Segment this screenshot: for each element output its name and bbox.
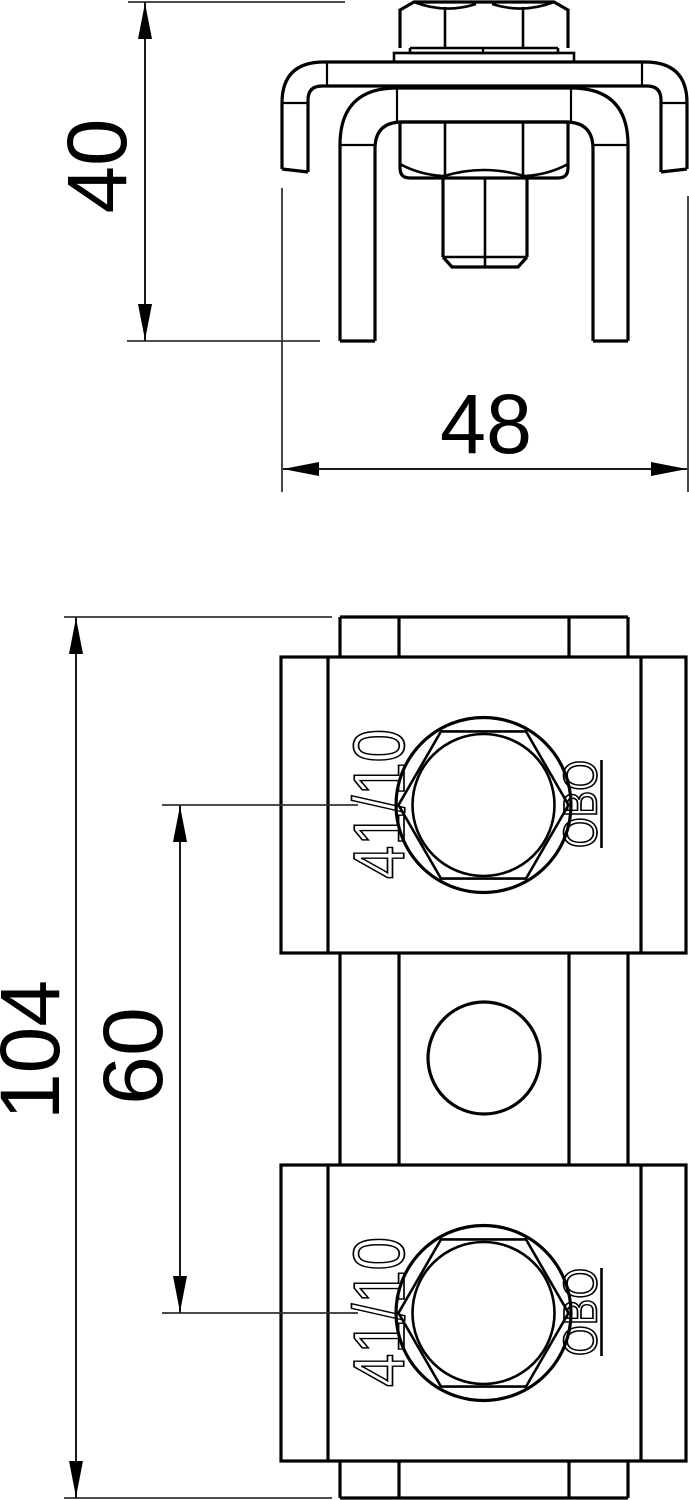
brand-marking-2: OBO	[554, 1268, 607, 1356]
arrowhead-down	[69, 1461, 83, 1497]
arrowhead-up	[69, 618, 83, 654]
bolt-size-marking-2: 41/10	[340, 1237, 420, 1387]
technical-drawing: 40 48	[0, 0, 689, 1500]
arrowhead-up	[138, 3, 152, 39]
rail-hole	[428, 1002, 540, 1114]
dim-width-label: 48	[440, 377, 532, 471]
arrowhead-down	[173, 1276, 187, 1312]
drawing-sheet: 40 48	[0, 0, 689, 1500]
elevation-view: 40 48	[50, 2, 688, 492]
dim-spacing-label: 60	[86, 1007, 180, 1105]
bolt-head-top-1	[396, 718, 571, 893]
obo-logo-2: OBO	[554, 1268, 607, 1356]
plan-view: 41/10 OBO 41/10 OBO	[0, 617, 686, 1498]
hex-nut	[400, 2, 568, 53]
obo-logo-1: OBO	[554, 760, 607, 848]
bolt-size-marking-1: 41/10	[340, 729, 420, 879]
arrowhead-left	[283, 462, 319, 476]
brand-marking-1: OBO	[554, 760, 607, 848]
bolt-shaft	[443, 178, 527, 267]
bolt-head-top-2	[396, 1226, 571, 1401]
dim-spacing-60: 60	[86, 805, 358, 1313]
dim-height-label: 40	[50, 119, 144, 214]
dim-overall-label: 104	[0, 980, 77, 1120]
clamp-bracket-outer	[282, 62, 687, 172]
arrowhead-up	[173, 806, 187, 842]
arrowhead-right	[651, 462, 687, 476]
arrowhead-down	[138, 304, 152, 340]
bolt-head-front	[400, 122, 568, 178]
